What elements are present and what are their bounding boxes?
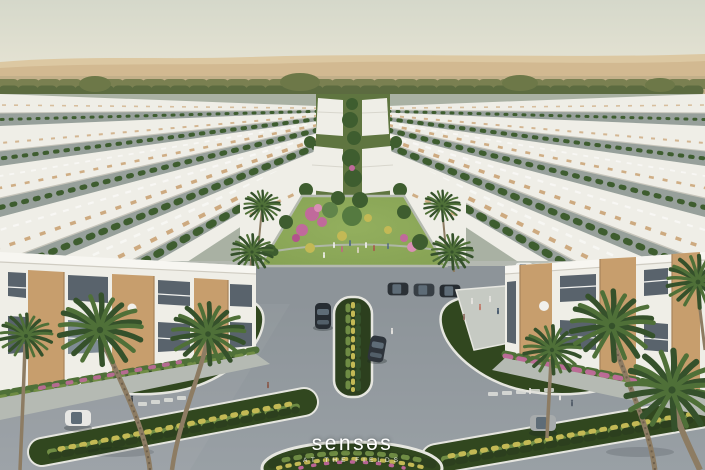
central-median-planter bbox=[334, 297, 372, 397]
community-render: sensəs AT THE FIELDS bbox=[0, 0, 705, 470]
logo-wordmark: sensəs bbox=[303, 433, 402, 454]
scene-canvas bbox=[0, 0, 705, 470]
developer-logo: sensəs AT THE FIELDS bbox=[303, 433, 402, 464]
logo-tagline: AT THE FIELDS bbox=[303, 457, 402, 464]
